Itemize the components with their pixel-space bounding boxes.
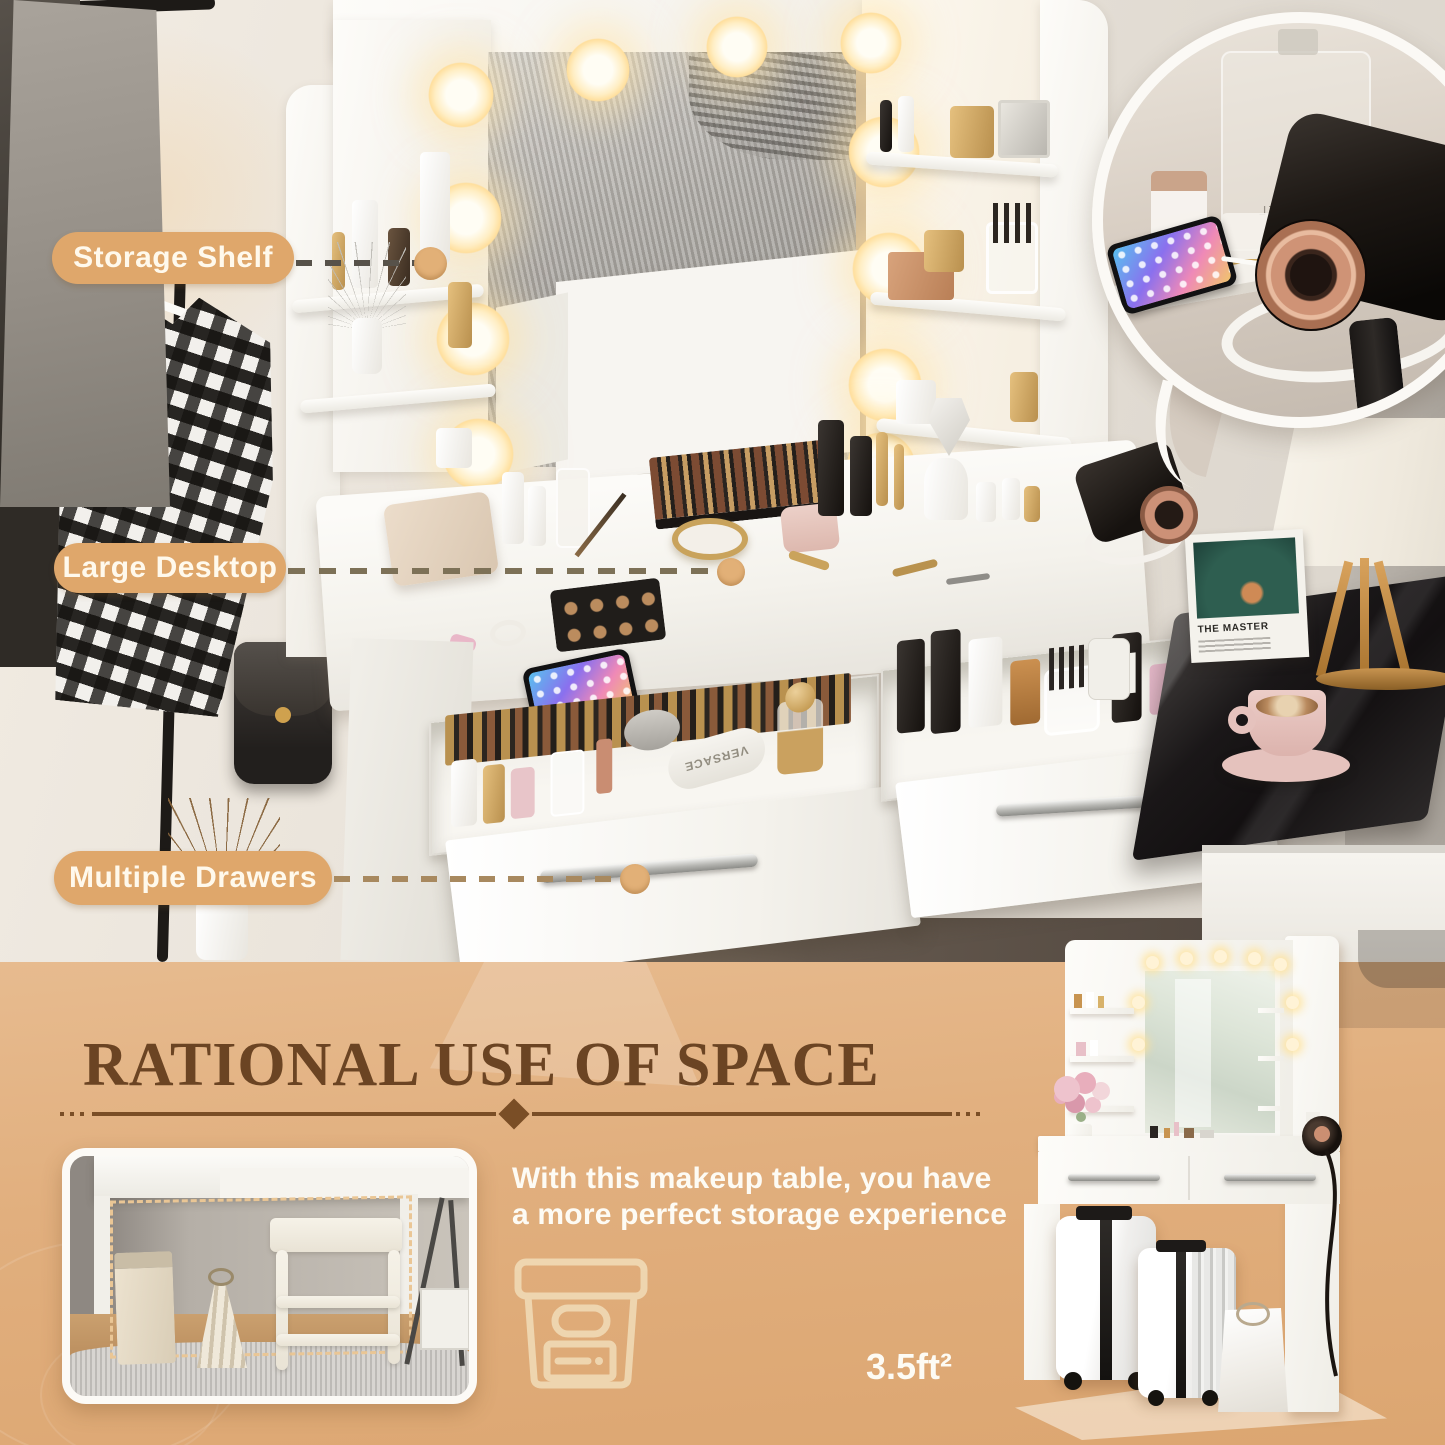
p-left-leg [1024, 1204, 1060, 1380]
p-shelf-board [1258, 1008, 1284, 1013]
pearl-dish [672, 518, 748, 560]
chanel-cap [1278, 29, 1318, 55]
suitcase-top-trim [1076, 1206, 1132, 1220]
drawer-gold-ball-bottle [777, 698, 823, 775]
wall-outlet [1088, 638, 1130, 700]
p-bulb [1132, 1038, 1145, 1051]
callout-large-desktop-label: Large Desktop [63, 551, 278, 584]
inset-cart-bin [420, 1288, 470, 1350]
vanity-bulb [428, 62, 494, 128]
suitcase-strap [1176, 1248, 1186, 1398]
p-bulb [1248, 952, 1261, 965]
suitcase-strap [1100, 1216, 1112, 1380]
mascara [880, 100, 892, 152]
suitcase-wheel [1148, 1390, 1164, 1406]
drawer-clear-bottle [551, 749, 585, 817]
stool-crossbar [276, 1334, 400, 1346]
p-shelf-board [1258, 1056, 1284, 1061]
black-serum [850, 436, 872, 516]
perfume-decanter [924, 458, 968, 520]
callout-multiple-drawers-label: Multiple Drawers [69, 861, 317, 894]
drawer-bottle-pink [511, 766, 535, 819]
p-desktop [1038, 1136, 1340, 1152]
callout-dot-large-desktop [717, 558, 745, 586]
gold-ball-cap [785, 681, 815, 714]
drawer-bottle [483, 764, 505, 825]
gold-mascara [876, 432, 888, 506]
callout-storage-shelf-label: Storage Shelf [73, 241, 273, 274]
mini-bottle [1024, 486, 1040, 522]
detail-bubble-inset: CHANEL [1092, 12, 1445, 428]
bubble-charging-phone [1105, 214, 1238, 316]
gold-bottle [1010, 372, 1038, 422]
p-bulb [1214, 950, 1227, 963]
drawer-cup-brushes [1049, 644, 1093, 691]
product-ghost-sofa [1358, 930, 1445, 988]
lamp-leg [1360, 558, 1369, 680]
drawer-bottle [451, 758, 477, 827]
mirror-flask [998, 100, 1050, 158]
p-shelf-items [1072, 1040, 1132, 1056]
black-serum [818, 420, 844, 516]
record-title: THE MASTER [1197, 621, 1268, 636]
section-description-line2: a more perfect storage experience [512, 1198, 1007, 1232]
p-dryer-cable [1308, 1148, 1360, 1380]
coffee-surface [1256, 695, 1318, 717]
storage-bag-handle [208, 1268, 234, 1286]
section-description-line1: With this makeup table, you have [512, 1162, 992, 1196]
p-drawer-band [1038, 1152, 1340, 1204]
stool-leg [276, 1250, 288, 1370]
stool-crossbar [276, 1296, 400, 1308]
divider-dots-right [956, 1112, 984, 1116]
storage-box-icon [506, 1256, 656, 1396]
callout-storage-shelf: Storage Shelf [52, 232, 294, 284]
handbag [234, 642, 332, 784]
record-sleeve: THE MASTER [1185, 529, 1310, 663]
brush-cup [986, 222, 1038, 294]
callout-multiple-drawers: Multiple Drawers [54, 851, 332, 905]
p-bulb [1286, 996, 1299, 1009]
mini-bottle [1002, 478, 1020, 520]
section-title: RATIONAL USE OF SPACE [83, 1030, 880, 1101]
p-bulb [1180, 952, 1193, 965]
drawer-amber-bottle [1010, 658, 1040, 725]
callout-dot-storage-shelf [414, 247, 447, 280]
p-shelf-board [1070, 1106, 1134, 1112]
callout-large-desktop: Large Desktop [54, 543, 286, 593]
callout-dot-multiple-drawers [620, 864, 650, 894]
hair-dryer-face [1140, 486, 1198, 544]
gold-cylinder [448, 282, 472, 348]
callout-line-large-desktop [288, 568, 718, 574]
p-drawer-divider [1188, 1156, 1190, 1200]
cream-jar [436, 428, 472, 468]
divider-line-left [92, 1112, 496, 1116]
lamp-base [1316, 668, 1445, 690]
cup-handle [1228, 706, 1256, 734]
inset-desk-top-right [220, 1168, 469, 1198]
vanity-bulb [706, 16, 768, 78]
p-drawer-handle [1224, 1174, 1316, 1181]
gold-mascara [894, 444, 904, 510]
p-mirror-window-light [1175, 979, 1211, 1127]
product-figure [1010, 930, 1445, 1445]
p-shelf-board [1070, 1008, 1134, 1014]
p-shelf-board [1070, 1056, 1134, 1062]
record-text-lines [1198, 637, 1271, 653]
white-tube [898, 96, 914, 152]
lipstick-set [924, 230, 964, 272]
drawer-black-bottle [897, 638, 925, 733]
p-bulb [1286, 1038, 1299, 1051]
suitcase-wheel [1064, 1372, 1082, 1390]
handbag-clasp [275, 707, 291, 723]
gold-perfume [950, 106, 994, 158]
mini-bottle [976, 482, 996, 522]
footprint-value: 3.5ft² [866, 1346, 952, 1388]
serum-bottle [502, 472, 524, 544]
drawer-black-bottle [931, 629, 961, 735]
divider-dots-left [60, 1112, 88, 1116]
stool-cushion [270, 1218, 402, 1252]
p-flowers [1054, 1076, 1080, 1102]
callout-line-storage-shelf [296, 260, 418, 266]
drawer-rosegold-lipstick [596, 738, 612, 794]
p-bulb [1146, 956, 1159, 969]
p-drawer-handle [1068, 1174, 1160, 1181]
p-mirror [1140, 966, 1280, 1138]
p-dryer-face [1314, 1126, 1330, 1142]
coffee-cup [1248, 690, 1326, 756]
drawer-white-bottle [969, 636, 1003, 728]
reed-diffuser-sticks [328, 242, 406, 330]
makeup-brushes [993, 203, 1033, 243]
floor-diffuser-vase [196, 898, 248, 960]
record-art [1193, 537, 1299, 618]
storage-bag-cream [114, 1251, 176, 1365]
p-shelf-items [1072, 990, 1132, 1008]
callout-line-multiple-drawers [334, 876, 620, 882]
vanity-bulb [840, 12, 902, 74]
suitcase-top-trim [1156, 1240, 1206, 1252]
vanity-bulb [566, 38, 630, 102]
product-marketing-image: VERSACE THE MASTER [0, 0, 1445, 1445]
under-desk-inset-photo [62, 1148, 477, 1404]
bubble-dryer-face [1255, 219, 1367, 331]
serum-bottle [528, 486, 546, 546]
p-mini-cosmetics [1150, 1122, 1246, 1138]
gift-bag-handle [1236, 1302, 1270, 1326]
diffuser-vase [352, 318, 382, 374]
clear-perfume [556, 468, 590, 548]
p-shelf-board [1258, 1106, 1284, 1111]
suitcase-wheel [1202, 1390, 1218, 1406]
divider-line-right [532, 1112, 952, 1116]
p-bulb [1274, 958, 1287, 971]
